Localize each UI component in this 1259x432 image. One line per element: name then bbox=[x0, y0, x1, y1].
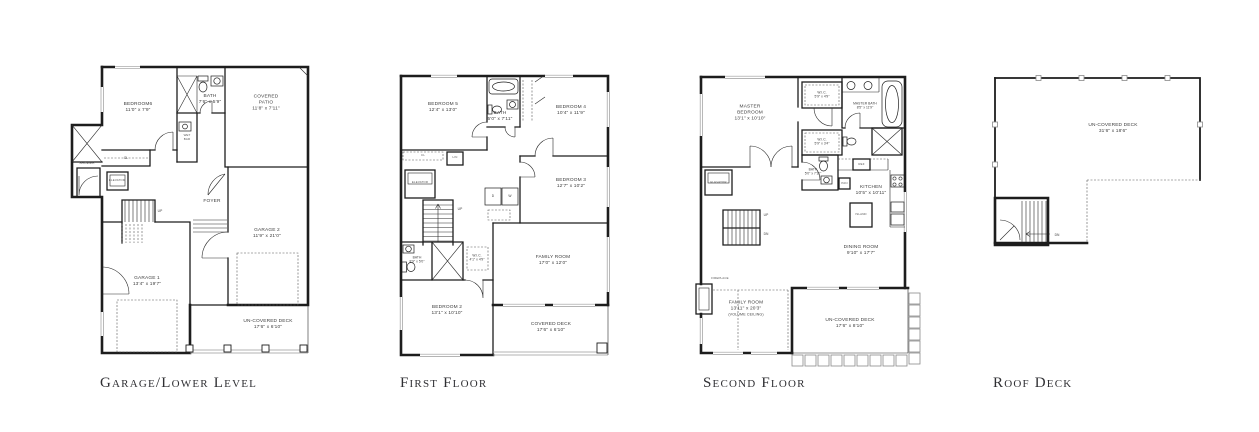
room-dims: 13'4" x 19'7" bbox=[133, 282, 161, 288]
room-dims: 4'1" x 4'9" bbox=[470, 258, 485, 262]
room-label-bath: BATH5'0" x 7'11" bbox=[805, 168, 822, 177]
room-label-closet: CL bbox=[421, 154, 425, 158]
stairs bbox=[723, 210, 760, 245]
room-dims: 11'9" x 21'0" bbox=[253, 234, 281, 240]
room-dims: 17'6" x 6'10" bbox=[243, 325, 292, 331]
room-name: FOYER bbox=[203, 199, 220, 205]
room-label-family-room: FAMILY ROOM17'0" x 12'0" bbox=[536, 255, 571, 267]
label-washer: W bbox=[508, 194, 511, 198]
room-label-bath: BATH7'6" x 5'9" bbox=[199, 94, 222, 106]
room-label-linen: LIN bbox=[453, 156, 458, 160]
room-name: PAN bbox=[841, 182, 847, 186]
room-dims: 8'5" x 11'9" bbox=[851, 106, 879, 110]
room-dims: 17'6" x 8'10" bbox=[825, 324, 874, 330]
room-label-shower: SHOWER bbox=[79, 161, 94, 165]
room-label-bedroom2: BEDROOM 213'1" x 10'10" bbox=[431, 305, 462, 317]
room-label-covered-patio: COVERED PATIO11'8" x 7'11" bbox=[248, 95, 284, 114]
room-dims: 5'9" x 3'4" bbox=[815, 142, 830, 146]
room-name: UP bbox=[158, 209, 163, 213]
room-dims: 12'7" x 10'2" bbox=[556, 184, 586, 190]
room-label-elevator: ELEVATOR bbox=[412, 181, 428, 185]
shower-hatch bbox=[72, 76, 197, 162]
stair-label-up: UP bbox=[764, 213, 769, 217]
room-name: UP bbox=[458, 207, 463, 211]
volume-ceiling-dashes bbox=[713, 290, 788, 350]
room-label-bath-upper: BATH5'0" x 7'11" bbox=[487, 111, 512, 123]
room-label-bath-lower: BATH8'9" x 5'0" bbox=[410, 256, 425, 265]
stair-label-dn: DN bbox=[1055, 233, 1060, 237]
room-label-uncovered-deck: UN-COVERED DECK31'6" x 18'6" bbox=[1088, 123, 1137, 135]
room-label-master-bedroom: MASTER BEDROOM13'1" x 10'10" bbox=[730, 105, 770, 124]
room-name: CL bbox=[124, 156, 128, 160]
room-dims: 5'9" x 4'9" bbox=[815, 95, 830, 99]
plan-title-roof-deck: Roof Deck bbox=[993, 375, 1072, 392]
room-name: ISLAND bbox=[855, 213, 866, 217]
room-label-uncovered-deck: UN-COVERED DECK17'6" x 6'10" bbox=[243, 319, 292, 331]
stair-label-up: UP bbox=[458, 207, 463, 211]
stairs bbox=[423, 200, 453, 245]
room-dims: 17'6" x 6'10" bbox=[531, 328, 571, 334]
stair-label-up: UP bbox=[158, 209, 163, 213]
label-fridge: REF bbox=[858, 163, 864, 167]
laundry-units bbox=[485, 188, 518, 205]
room-label-bedroom6: BEDROOM611'0" x 7'9" bbox=[124, 102, 153, 114]
room-label-garage1: GARAGE 113'4" x 19'7" bbox=[133, 276, 161, 288]
room-label-covered-deck: COVERED DECK17'6" x 6'10" bbox=[531, 322, 571, 334]
room-name: LIN bbox=[453, 156, 458, 160]
floorplan-second-floor: MASTER BEDROOM13'1" x 10'10" W.I.C.5'9" … bbox=[695, 62, 930, 372]
room-name: CL bbox=[421, 154, 425, 158]
room-label-bedroom3: BEDROOM 312'7" x 10'2" bbox=[556, 178, 586, 190]
room-label-closet: CL bbox=[124, 156, 128, 160]
room-dims: 31'6" x 18'6" bbox=[1088, 129, 1137, 135]
room-dims: 13'1" x 10'10" bbox=[431, 311, 462, 317]
room-label-wic: W.I.C.4'1" x 4'9" bbox=[470, 254, 485, 263]
label-pantry: PAN bbox=[841, 182, 847, 186]
room-label-foyer: FOYER bbox=[203, 199, 220, 205]
floorplan-sheet: BEDROOM611'0" x 7'9" BATH7'6" x 5'9" COV… bbox=[0, 0, 1259, 432]
room-dims: 9'10" x 17'7" bbox=[844, 251, 879, 257]
stairs bbox=[122, 200, 155, 243]
room-name: COVERED PATIO bbox=[248, 95, 284, 107]
room-name: DN bbox=[1055, 233, 1060, 237]
room-label-uncovered-deck: UN-COVERED DECK17'6" x 8'10" bbox=[825, 318, 874, 330]
room-label-garage2: GARAGE 211'9" x 21'0" bbox=[253, 228, 281, 240]
room-label-elevator: ELEVATOR bbox=[109, 179, 125, 183]
room-dims: 11'0" x 7'9" bbox=[124, 108, 153, 114]
room-label-wet-bar: WET BAR bbox=[182, 134, 192, 142]
room-name: W bbox=[508, 194, 511, 198]
room-dims: 8'9" x 5'0" bbox=[410, 260, 425, 264]
room-name: D bbox=[492, 194, 494, 198]
room-name: SHOWER bbox=[79, 161, 94, 165]
room-dims: 5'0" x 7'11" bbox=[487, 117, 512, 123]
entry-steps bbox=[193, 220, 227, 232]
room-name: DN bbox=[764, 232, 769, 236]
room-name: ELEVATOR bbox=[412, 181, 428, 185]
stair-label-dn: DN bbox=[764, 232, 769, 236]
room-label-master-bath: MASTER BATH8'5" x 11'9" bbox=[851, 102, 879, 111]
room-name: ELEVATOR bbox=[109, 179, 125, 183]
room-name: MASTER BEDROOM bbox=[730, 105, 770, 117]
room-label-wic1: W.I.C.5'9" x 4'9" bbox=[815, 91, 830, 100]
room-label-bedroom4: BEDROOM 410'4" x 11'9" bbox=[556, 105, 586, 117]
room-dims: 10'5" x 10'11" bbox=[856, 191, 887, 197]
room-name: ELEVATOR bbox=[710, 181, 726, 185]
wall-ticks bbox=[993, 76, 1203, 168]
plan-title-garage-lower-level: Garage/Lower Level bbox=[100, 375, 257, 392]
roof-deck-drawing bbox=[990, 62, 1220, 317]
room-name: REF bbox=[858, 163, 864, 167]
room-dims: 7'6" x 5'9" bbox=[199, 100, 222, 106]
label-fireplace: FIREPLACE bbox=[711, 277, 728, 281]
room-label-wic2: W.I.C.5'9" x 3'4" bbox=[815, 138, 830, 147]
room-name: UP bbox=[764, 213, 769, 217]
stairs bbox=[1000, 201, 1050, 242]
room-label-family-room: FAMILY ROOM13'11" x 20'3"(VOLUME CEILING… bbox=[728, 300, 763, 317]
floorplan-roof-deck: UN-COVERED DECK31'6" x 18'6" DN bbox=[990, 62, 1220, 317]
floorplan-garage-lower-level: BEDROOM611'0" x 7'9" BATH7'6" x 5'9" COV… bbox=[70, 62, 315, 367]
room-name: FIREPLACE bbox=[711, 277, 728, 281]
room-dims: 5'0" x 7'11" bbox=[805, 172, 822, 176]
label-dryer: D bbox=[492, 194, 494, 198]
room-note: (VOLUME CEILING) bbox=[728, 313, 763, 318]
plan-title-second-floor: Second Floor bbox=[703, 375, 806, 392]
room-label-dining-room: DINING ROOM9'10" x 17'7" bbox=[844, 245, 879, 257]
room-dims: 13'1" x 10'10" bbox=[730, 117, 770, 123]
room-name: WET BAR bbox=[182, 134, 192, 142]
room-dims: 10'4" x 11'9" bbox=[556, 111, 586, 117]
room-label-kitchen: KITCHEN10'5" x 10'11" bbox=[856, 185, 887, 197]
room-dims: 11'8" x 7'11" bbox=[248, 107, 284, 113]
room-label-bedroom5: BEDROOM 512'4" x 13'0" bbox=[428, 102, 458, 114]
plan-title-first-floor: First Floor bbox=[400, 375, 487, 392]
room-dims: 12'4" x 13'0" bbox=[428, 108, 458, 114]
room-label-elevator: ELEVATOR bbox=[710, 181, 726, 185]
floorplan-first-floor: BEDROOM 512'4" x 13'0" BATH5'0" x 7'11" … bbox=[395, 62, 615, 362]
room-label-island: ISLAND bbox=[855, 213, 866, 217]
room-dims: 17'0" x 12'0" bbox=[536, 261, 571, 267]
